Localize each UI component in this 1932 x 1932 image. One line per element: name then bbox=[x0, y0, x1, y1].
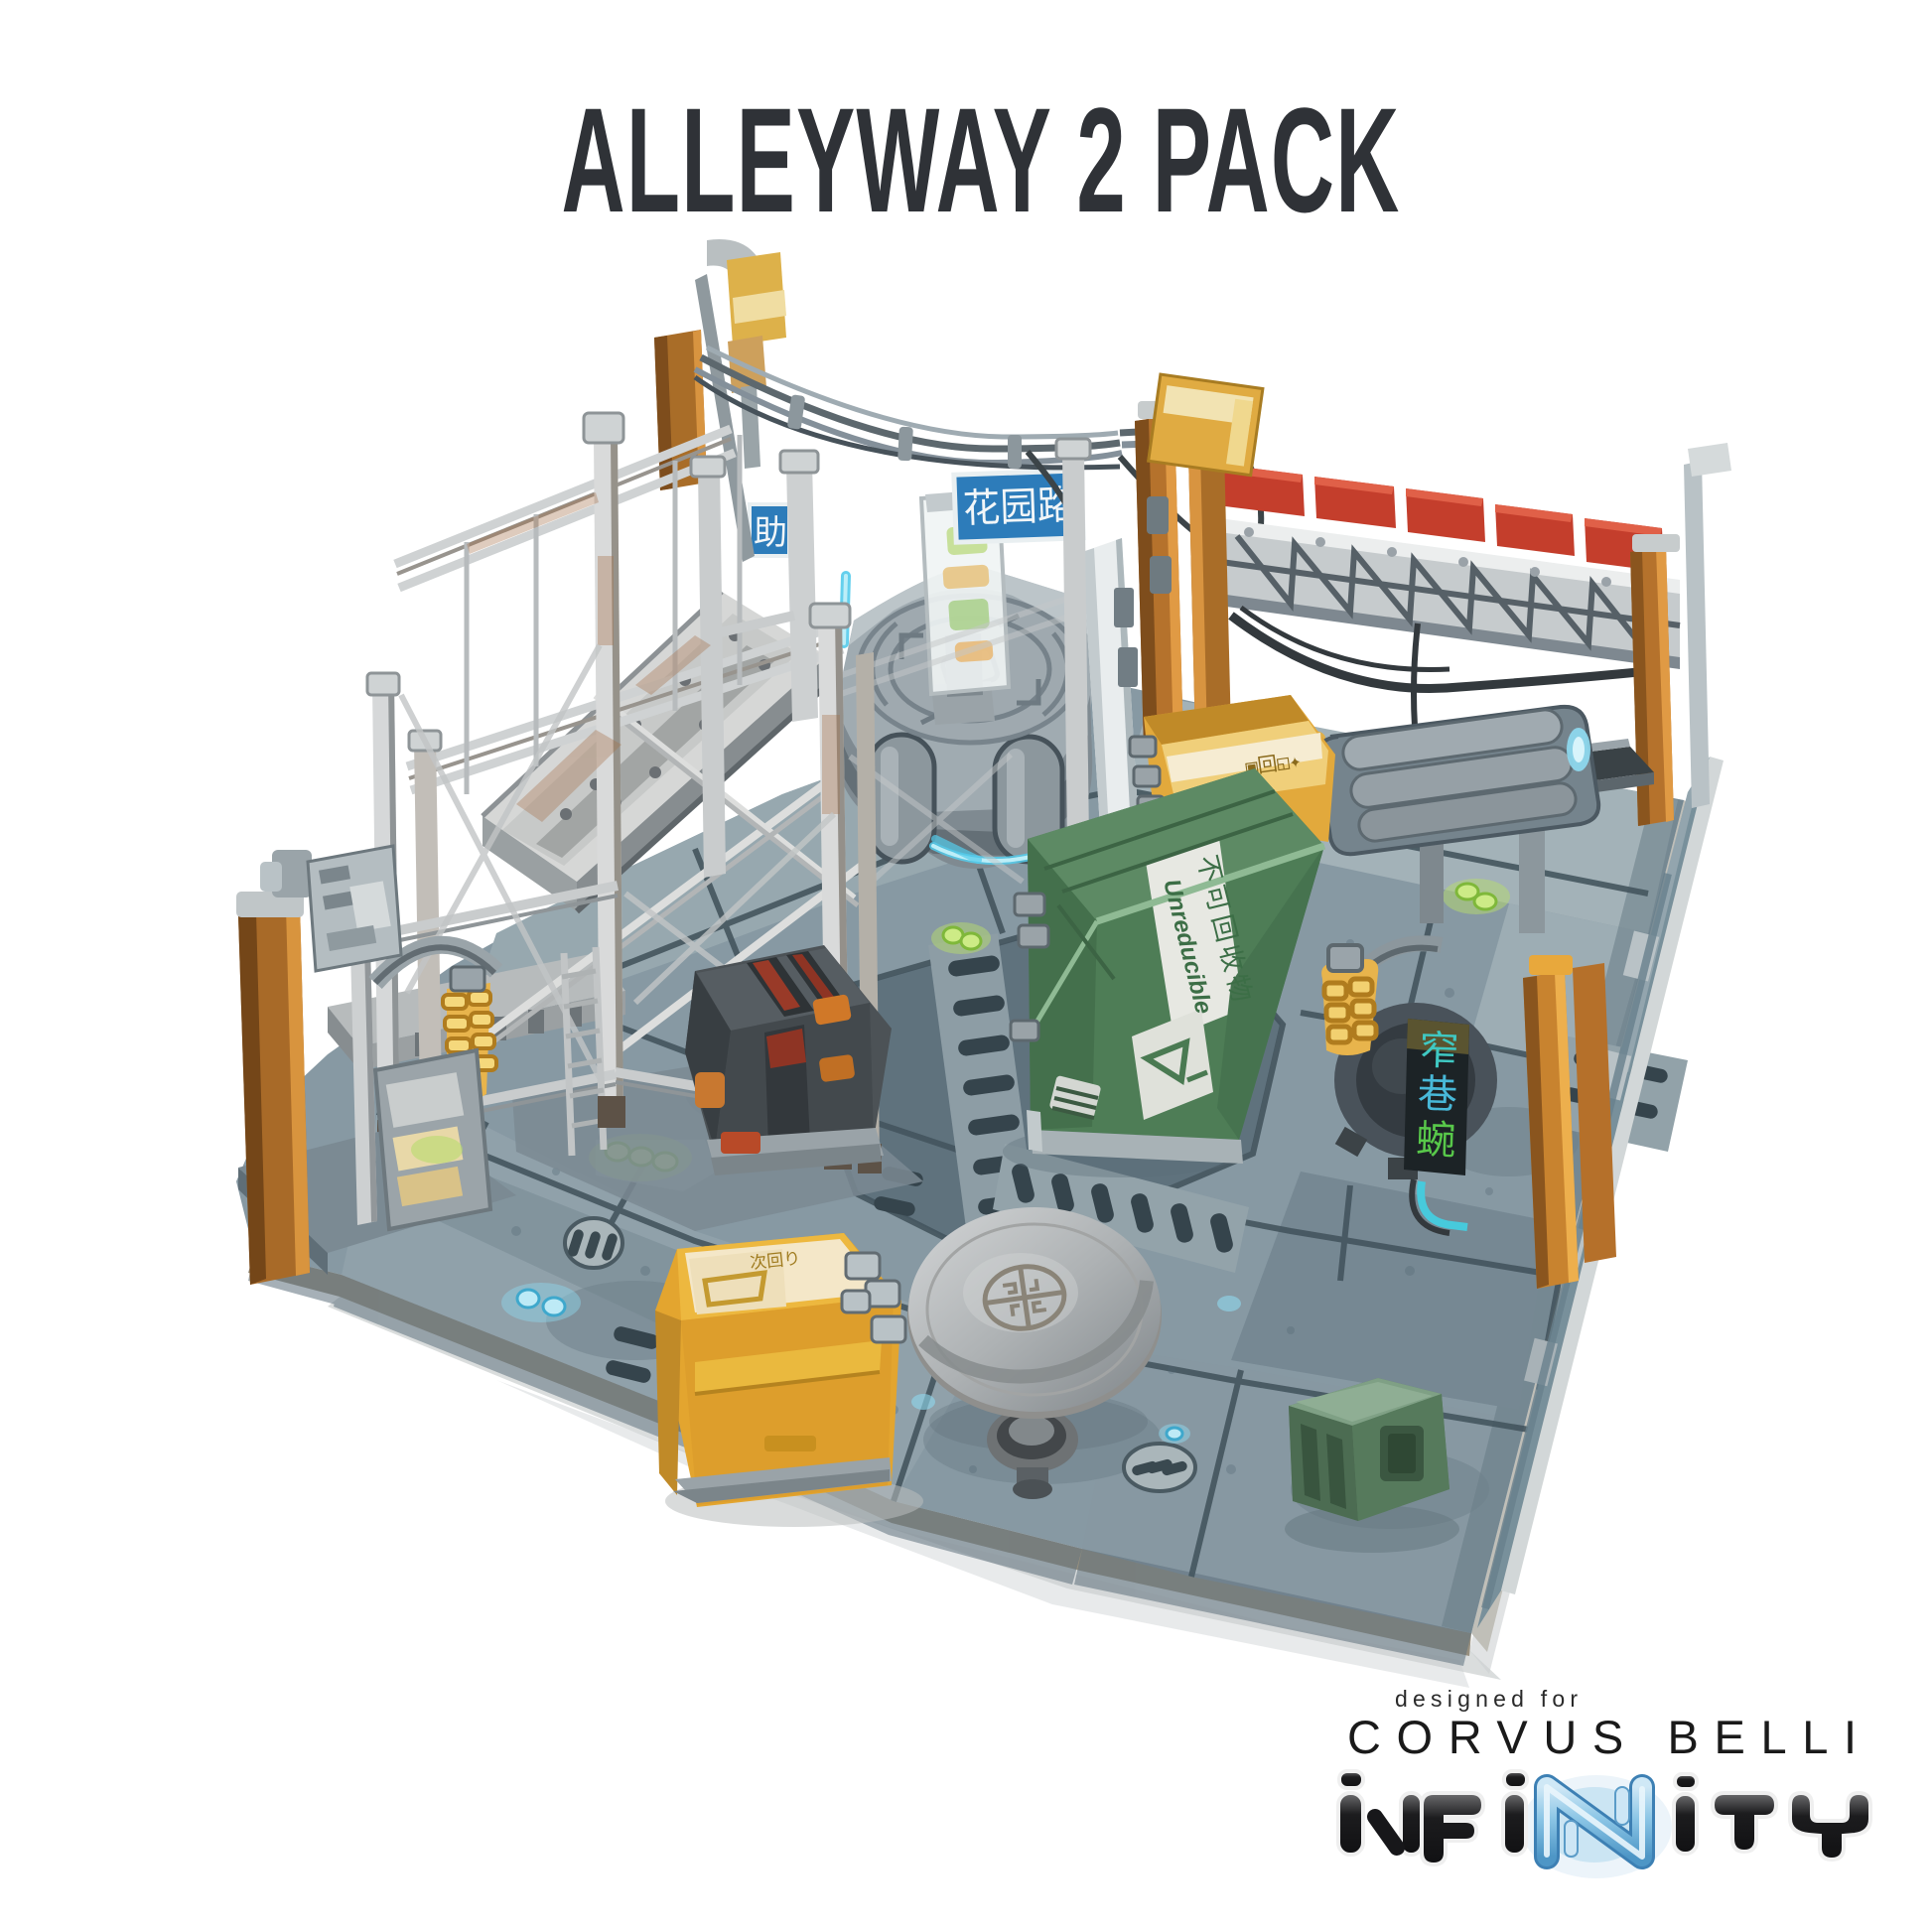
svg-text:助: 助 bbox=[754, 514, 787, 552]
svg-text:ALLEYWAY 2 PACK: ALLEYWAY 2 PACK bbox=[562, 76, 1401, 243]
svg-text:窄: 窄 bbox=[1419, 1029, 1460, 1073]
svg-text:CORVUS BELLI: CORVUS BELLI bbox=[1347, 1711, 1857, 1763]
svg-text:蜿: 蜿 bbox=[1416, 1118, 1457, 1163]
svg-text:巷: 巷 bbox=[1417, 1072, 1458, 1117]
